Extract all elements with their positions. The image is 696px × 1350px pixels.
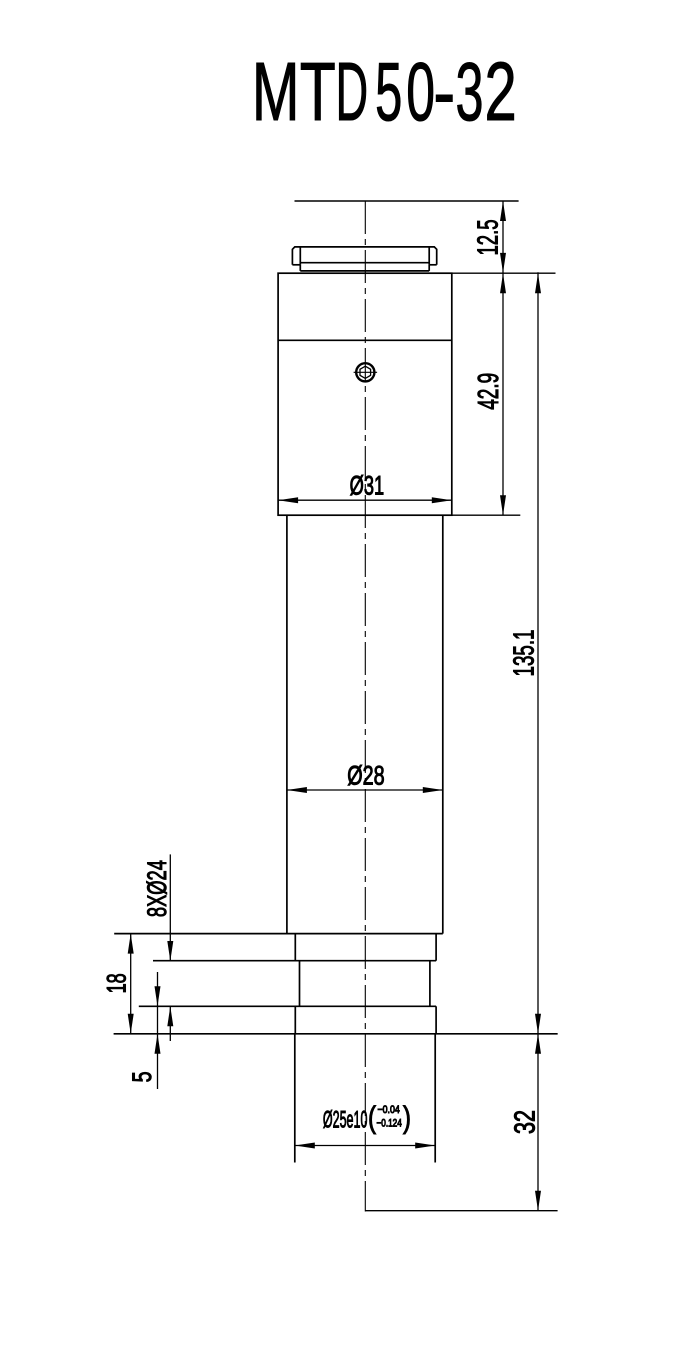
- svg-text:42.9: 42.9: [473, 373, 505, 410]
- svg-text:M: M: [252, 45, 300, 138]
- svg-text:5: 5: [127, 1071, 157, 1082]
- svg-text:−0.04: −0.04: [378, 1104, 400, 1116]
- svg-text:3: 3: [455, 45, 483, 138]
- svg-text:(: (: [368, 1100, 377, 1135]
- svg-text:12.5: 12.5: [473, 220, 505, 256]
- svg-text:Ø31: Ø31: [350, 471, 385, 501]
- svg-text:−0.124: −0.124: [377, 1118, 402, 1130]
- svg-text:T: T: [300, 46, 336, 138]
- svg-text:D: D: [335, 45, 368, 138]
- svg-text:): ): [403, 1100, 411, 1135]
- svg-text:135.1: 135.1: [509, 630, 541, 677]
- svg-text:0: 0: [406, 44, 435, 138]
- svg-text:Ø25e10: Ø25e10: [323, 1107, 368, 1134]
- svg-text:-: -: [433, 45, 455, 138]
- svg-text:32: 32: [510, 1110, 542, 1134]
- svg-text:5: 5: [375, 45, 402, 138]
- svg-text:Ø28: Ø28: [347, 761, 384, 791]
- svg-text:18: 18: [102, 973, 132, 993]
- svg-text:2: 2: [485, 46, 517, 139]
- svg-text:8XØ24: 8XØ24: [142, 860, 172, 917]
